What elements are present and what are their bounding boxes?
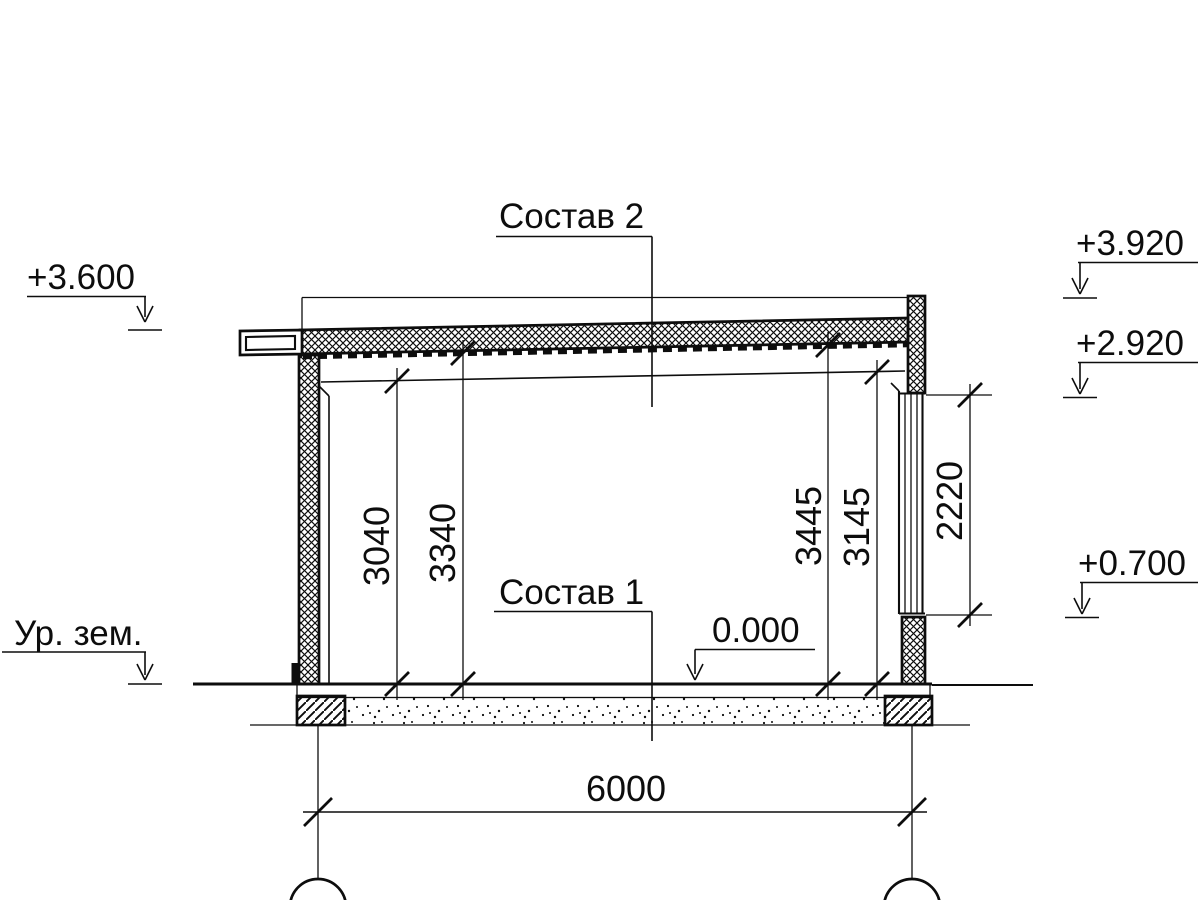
- dim-3040: 3040: [356, 368, 409, 700]
- right-wall: [891, 296, 925, 684]
- left-wall: [292, 355, 330, 684]
- leader-text: Состав 1: [499, 573, 644, 612]
- floor-and-ground: [193, 684, 1033, 725]
- dim-text: 3145: [836, 487, 877, 567]
- left-wall-panel: [299, 355, 319, 684]
- ground-level-text: Ур. зем.: [14, 614, 142, 653]
- foundation-right: [885, 696, 932, 725]
- ceiling-line: [321, 371, 905, 382]
- elevation-window-head: +2.920: [1063, 324, 1198, 398]
- dim-span-text: 6000: [586, 768, 666, 809]
- base-course-stipple: [345, 698, 885, 725]
- elevation-text: +3.920: [1076, 224, 1184, 263]
- foundation-left: [297, 696, 345, 725]
- dim-text: 3340: [422, 503, 463, 583]
- lintel-chamfer: [891, 383, 899, 391]
- section-drawing: 6000 3040 3340 3445 3145 2220 +3.600: [0, 0, 1200, 900]
- elevation-ground-level: Ур. зем.: [2, 614, 162, 684]
- elevation-roof-eave: +3.600: [27, 258, 162, 330]
- dim-text: 3445: [788, 486, 829, 566]
- axis-bubble-right: [884, 879, 940, 900]
- eave-channel: [240, 330, 302, 355]
- window: [891, 383, 925, 618]
- leader-text: Состав 2: [499, 197, 644, 236]
- roof-assembly: [240, 298, 908, 383]
- elevation-text: +3.600: [27, 258, 135, 297]
- right-wall-below-window: [902, 617, 925, 684]
- left-wall-plinth: [292, 663, 300, 684]
- elevation-text: +2.920: [1076, 324, 1184, 363]
- elevation-parapet-top: +3.920: [1063, 224, 1198, 298]
- dim-text: 2220: [929, 461, 970, 541]
- dim-span: 6000: [303, 768, 927, 826]
- right-wall-parapet: [908, 296, 925, 393]
- axis-bubble-left: [290, 879, 346, 900]
- elevation-text: 0.000: [712, 611, 800, 650]
- drawing-canvas: 6000 3040 3340 3445 3145 2220 +3.600: [0, 0, 1200, 900]
- elevation-floor-zero: 0.000: [687, 611, 815, 680]
- elevation-window-sill: +0.700: [1065, 544, 1198, 618]
- dim-text: 3040: [356, 506, 397, 586]
- elevation-text: +0.700: [1078, 544, 1186, 583]
- dim-2220: 2220: [926, 383, 992, 627]
- dim-3145: 3145: [836, 360, 889, 700]
- dim-3340: 3340: [422, 340, 475, 700]
